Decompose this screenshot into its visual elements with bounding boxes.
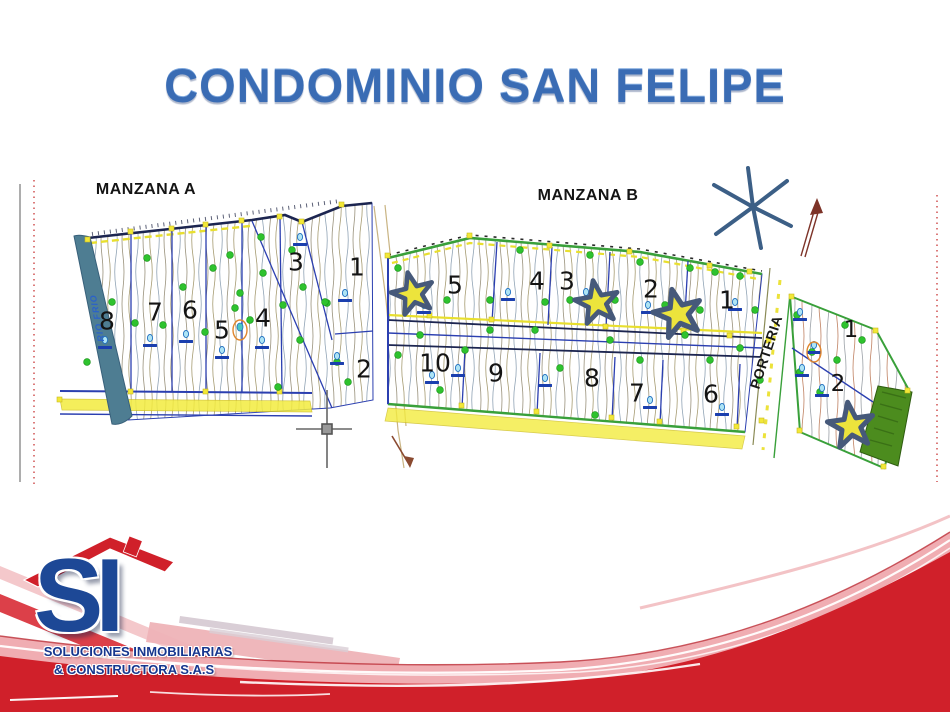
lot-number-b9: 9: [488, 359, 504, 388]
lot-number-b1: 1: [719, 286, 735, 315]
logo-monogram: SI: [34, 544, 194, 648]
lot-number-a3: 3: [288, 248, 304, 277]
logo-line-1: SOLUCIONES INMOBILIARIAS: [44, 644, 233, 659]
lot-number-b6: 6: [703, 380, 719, 409]
lot-number-a4: 4: [255, 304, 271, 333]
lot-number-b7: 7: [629, 379, 645, 408]
lot-number-b8: 8: [584, 364, 600, 393]
lot-number-a2: 2: [356, 355, 372, 384]
slide-title: CONDOMINIO SAN FELIPE: [0, 58, 950, 113]
lot-number-a5: 5: [214, 316, 230, 345]
lot-number-annex1: 1: [844, 317, 859, 343]
lot-number-a6: 6: [182, 296, 198, 325]
lot-number-b3: 3: [559, 267, 575, 296]
lot-number-b5: 5: [447, 271, 463, 300]
lot-number-b10: 10: [419, 349, 451, 378]
lot-number-b4: 4: [529, 267, 545, 296]
lot-number-annex2: 2: [831, 371, 846, 397]
manzana-b-label: MANZANA B: [538, 187, 639, 205]
lot-number-b2: 2: [643, 275, 659, 304]
lot-number-a8: 8: [99, 307, 115, 336]
lot-number-a1: 1: [349, 253, 365, 282]
lot-number-a7: 7: [147, 298, 163, 327]
slide: CONDOMINIO SAN FELIPE MANZANA A MANZANA …: [0, 0, 950, 712]
manzana-a-label: MANZANA A: [96, 181, 196, 199]
logo-line-2: & CONSTRUCTORA S.A.S: [54, 662, 214, 677]
